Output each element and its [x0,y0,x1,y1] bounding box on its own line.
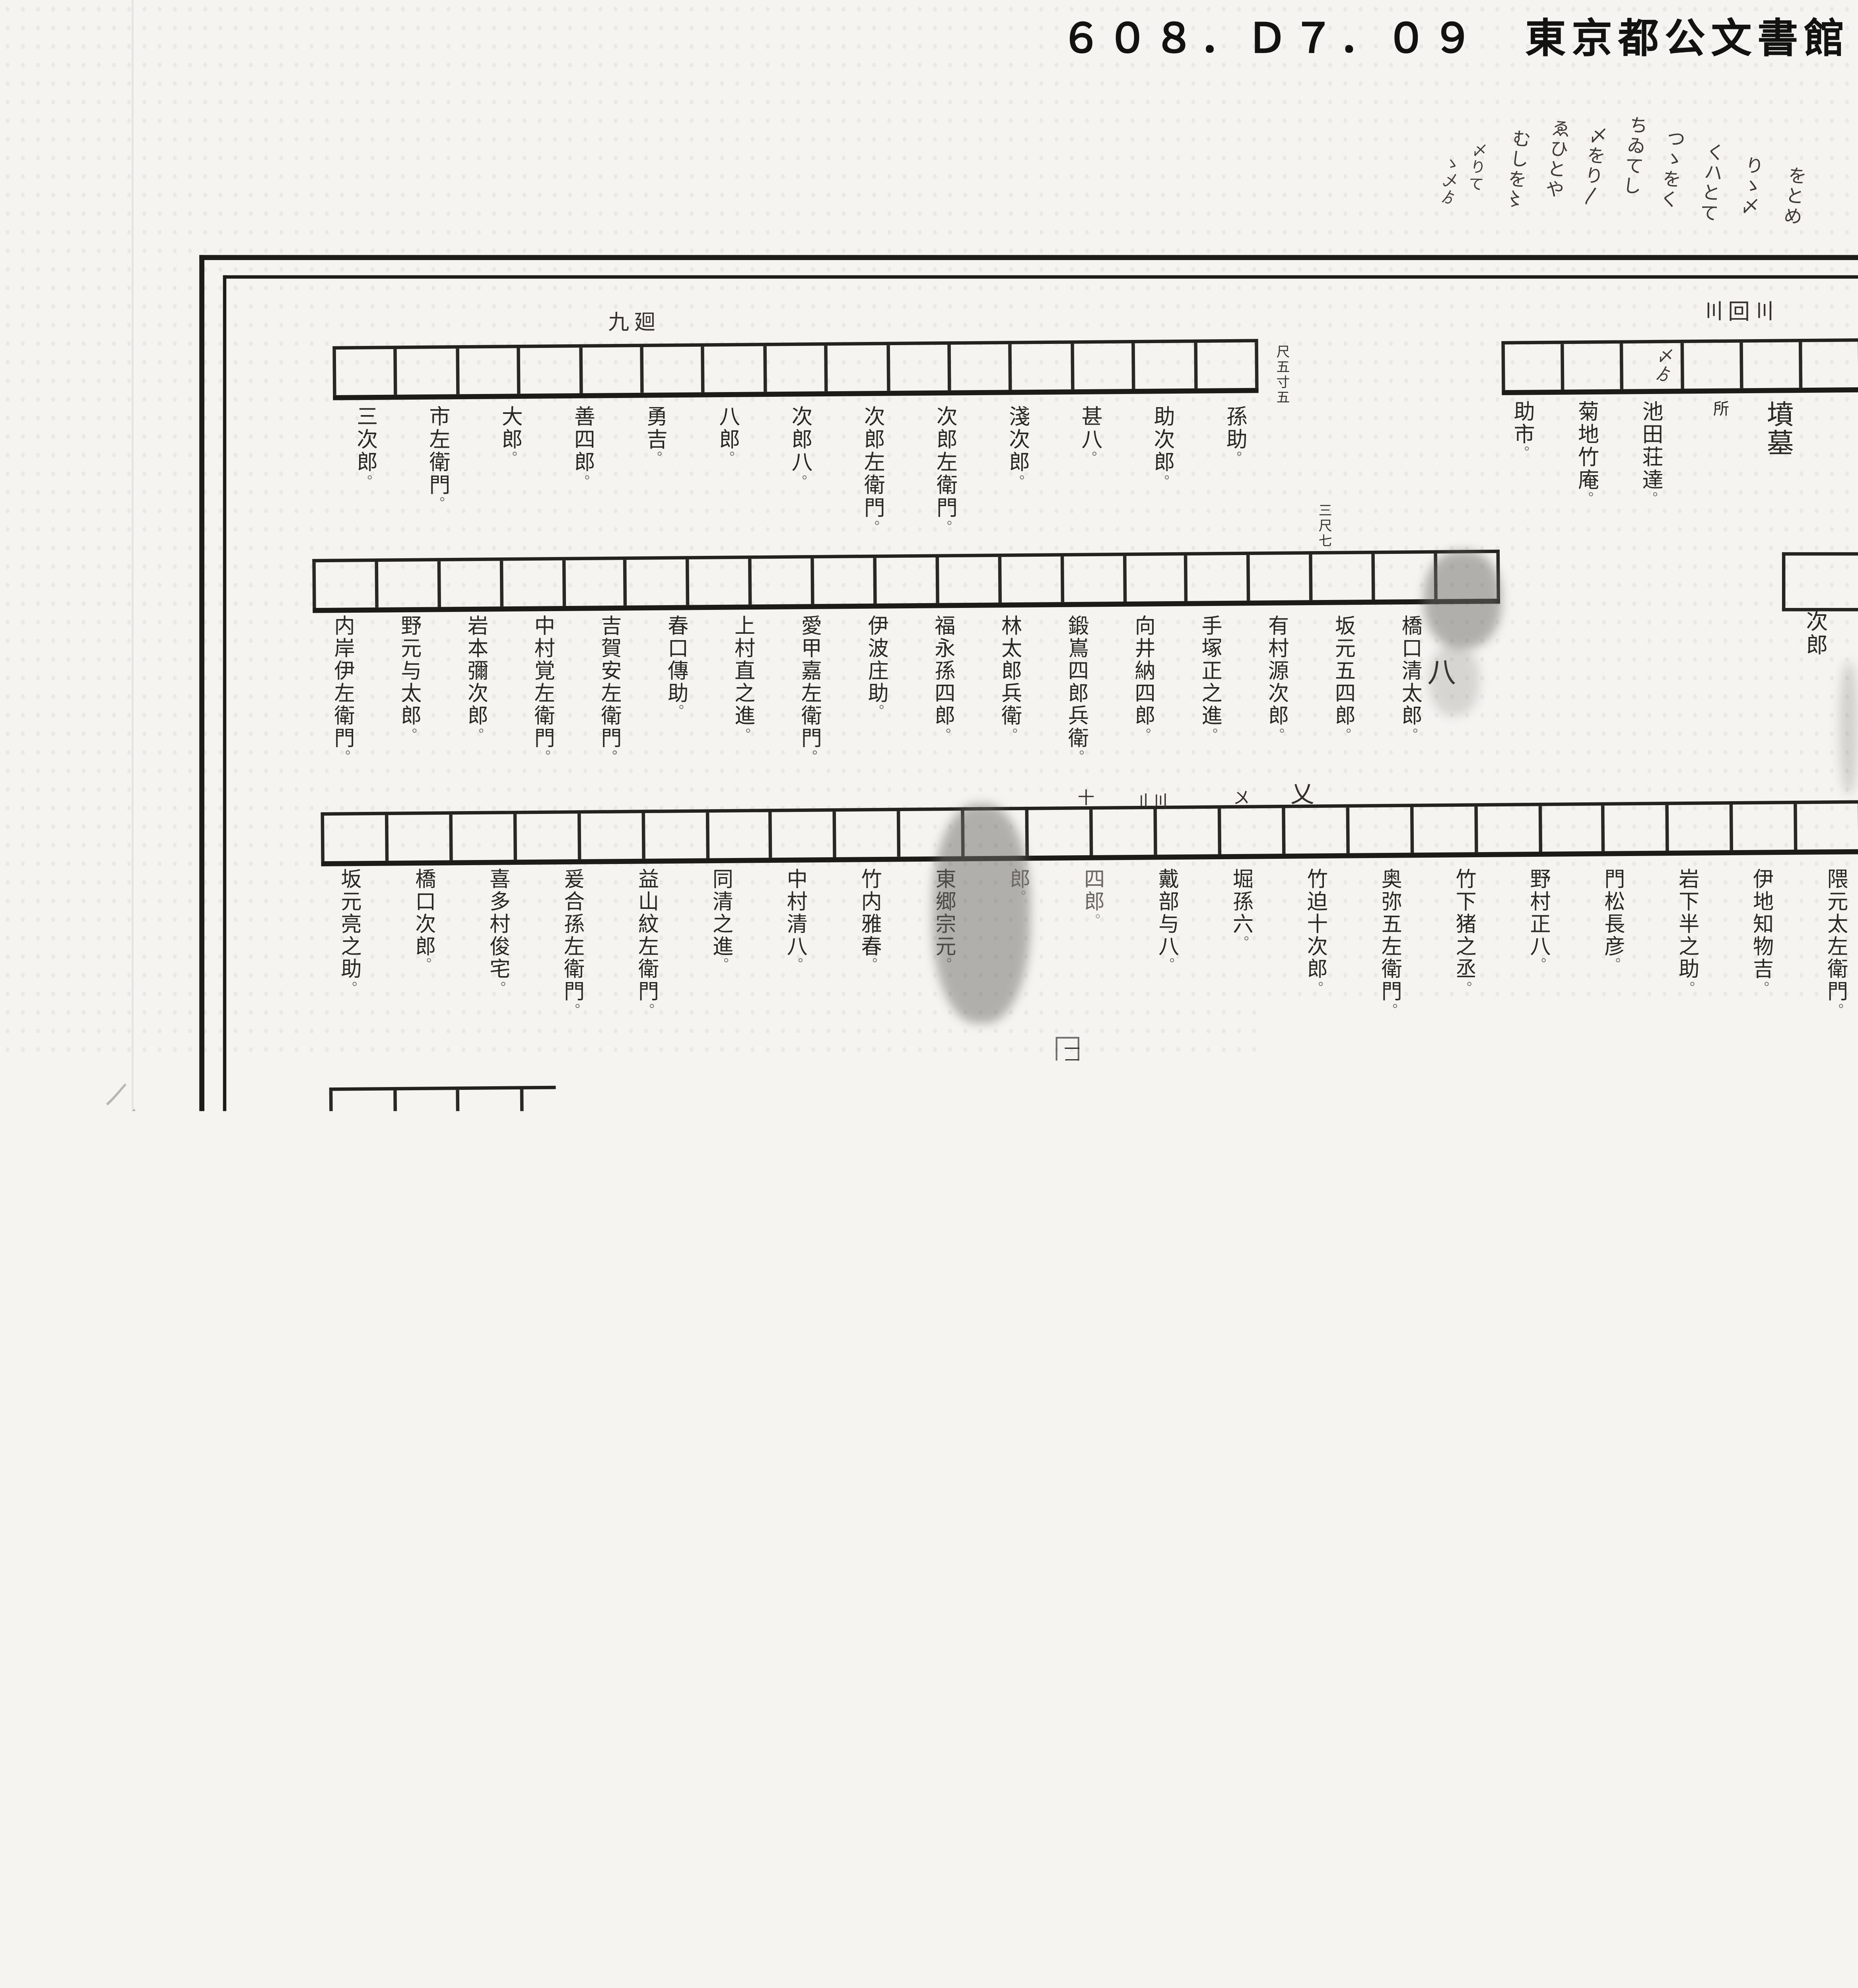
grave-plot-cell [752,558,815,604]
edge-plot-box [1782,552,1858,612]
stele-marker-label: 碑 [928,1698,952,1732]
name-end-mark: 。 [1606,958,1621,973]
wall-fragment [1767,1466,1858,1470]
plot-owner-name: 善四郎。 [562,405,592,574]
plot-owner-name: 貴嶋勇左衛門。 [1417,1143,1447,1363]
grave-plot-cell [587,1088,651,1134]
grave-plot-cell [708,812,773,858]
name-end-mark: 。 [793,474,808,489]
name-end-mark: 。 [1566,1256,1581,1271]
stone-path-center-joint [1363,1385,1367,1988]
illegible-scribble: 〣回〆寸 [432,1496,503,1520]
name-end-mark: 。 [870,705,885,720]
grave-plot-cell [1033,1085,1097,1131]
stele-marker-box: 碑 [912,1664,968,1767]
stone-path-bricks-left [1304,1385,1363,1988]
grave-plot-cell [1250,555,1313,601]
illegible-scribble: 丨回〣久〤十 [936,1858,1042,1881]
illegible-scribble: ゝ乄ゟ [1435,155,1459,237]
plot-owner-name: 竹迫十次郎。 [1296,868,1326,1077]
grave-plot-cell [1160,1084,1224,1130]
plot-owner-name: 中村覚左衛門。 [523,615,553,807]
plot-owner-name: 同清之進。 [701,868,731,1077]
grave-plot-cell [329,1090,397,1136]
grave-plot-cell [643,347,705,393]
grave-plot-strip [1501,338,1858,395]
grave-plot-cell [1093,809,1157,855]
plot-owner-name: 同庄八。 [336,1143,366,1363]
name-end-mark: 。 [1515,446,1530,461]
survey-mark-right: 〆 [1824,1692,1841,1718]
kuroda-grave-box [613,1599,784,1834]
plot-owner-name: 岩下半之助。 [1667,868,1697,1077]
name-end-mark: 。 [536,749,552,765]
name-end-mark: 。 [1836,1256,1851,1271]
plot-owner-name: 鍛嶌金兵衛。 [877,1143,907,1363]
illegible-scribble: くハとて [1687,141,1724,308]
name-end-mark: 。 [1155,474,1170,489]
grave-plot-cell [503,560,566,606]
grave-plot-cell [1351,1082,1415,1128]
plot-owner-name: 田中太郎太。 [742,1143,772,1363]
grave-plot-cell [1349,807,1413,853]
dimension-note: 一尺六寸 [1243,1662,1259,1763]
boundary-wall [223,275,226,1988]
wall-fragment [1505,1824,1508,1988]
grave-plot-cell [889,345,951,391]
lantern-small-label: 燈爐 [350,1848,374,1923]
grave-plot-cell [1288,1083,1352,1129]
plot-owner-name: 墳墓 [1758,400,1788,573]
plot-owner-name: 伊地知物吉。 [1741,868,1772,1077]
stone-path-upper [1300,1385,1430,1988]
grave-plot-cell [906,1086,970,1132]
grave-plot-cell [516,813,581,860]
plot-owner-name: 隈元太左衛門。 [1816,868,1846,1077]
name-end-mark: 。 [1070,749,1085,765]
grave-plot-strip [329,1076,1858,1142]
grave-plot-cell [1670,1080,1734,1126]
plot-owner-name: 有村源次郎。 [1257,615,1287,807]
grave-plot-cell [1126,555,1189,602]
grave-plot-cell [1797,1079,1858,1125]
grave-plot-cell [582,347,644,393]
name-end-mark: 。 [640,1003,655,1018]
plot-owner-name: 吉賀安左衛門。 [589,615,620,807]
survey-mark: 〤 [1233,784,1250,809]
grave-plot-cell [1313,554,1376,600]
grave-plot-cell [1543,1081,1607,1127]
survey-mark-top-left: 九廻 [608,304,661,336]
name-end-mark: 。 [1270,727,1285,742]
name-end-mark: 。 [1296,1278,1311,1293]
name-end-mark: 。 [688,1233,703,1248]
grave-plot-cell [1197,342,1259,388]
illegible-scribble: をとめ [1774,165,1805,278]
plot-owner-name: 菊地竹庵。 [1566,400,1596,573]
plot-owner-name: 堀孫六。 [1221,868,1252,1077]
grave-plot-cell [1097,1084,1161,1130]
grave-plot-cell [1285,808,1349,854]
plot-owner-name: 勇吉。 [634,405,665,574]
grave-plot-cell [440,561,503,607]
crease-mark: 水〻 [1201,1412,1246,1447]
grave-plot-cell [452,814,517,860]
grave-plot-cell [690,559,752,605]
plot-owner-name: 有川元左衛門。 [1282,1143,1312,1363]
survey-mark: 〢〣 [1135,787,1169,812]
grave-plot-cell [1733,804,1798,850]
photocopy-smudge [1839,662,1858,794]
stele-marker-box-right: 碑 [1510,1854,1606,1934]
plot-owner-name: 坂元亮之助。 [329,868,360,1077]
plot-owner-name: 肝付十郎。 [1147,1143,1177,1363]
grave-plot-cell [332,349,398,395]
grave-plot-cell [1224,1083,1288,1130]
grave-plot-cell [321,815,389,861]
name-end-mark: 。 [803,749,818,765]
grave-plot-cell [460,1089,524,1136]
grave-plot-cell [814,558,877,604]
name-end-mark: 。 [822,1211,838,1226]
survey-mark: 十 [1078,784,1094,809]
photocopy-smudge [1429,645,1479,716]
plot-owner-name: 橋口次郎。 [404,868,434,1077]
plot-owner-name: 戴部与八。 [1147,868,1177,1077]
name-end-mark: 。 [1532,958,1547,973]
plot-owner-name: 谷村小吉。 [674,1143,704,1363]
grave-plot-cell [1063,556,1126,602]
grave-plot-cell [644,813,709,859]
name-end-mark: 。 [737,727,752,742]
name-end-mark: 。 [648,451,663,466]
grave-plot-cell [970,1085,1034,1132]
grave-plot-cell [388,815,453,861]
lantern-16-label: 本六十爐燈 [334,1389,859,1476]
plot-owner-name: 四郎。 [1073,868,1103,1077]
name-end-mark: 。 [1160,958,1176,973]
grave-plot-cell [565,560,628,606]
grave-plot-cell [1606,1080,1670,1126]
grave-plot-cell [1564,344,1624,390]
name-end-mark: 。 [1083,451,1098,466]
name-end-mark: 。 [492,980,507,996]
name-end-mark: 。 [1010,474,1025,489]
grave-plot-cell [1477,806,1541,852]
name-end-mark: 。 [1404,727,1419,742]
grave-plot-cell [1802,342,1858,388]
plot-owner-name: 愛甲嘉左衛門。 [790,615,820,807]
survey-mark-top-right: 〣回〣 [1703,294,1778,326]
illegible-scribble: 〆りて [1462,141,1487,235]
name-end-mark: 。 [1579,491,1594,507]
name-end-mark: 。 [1003,727,1018,742]
name-end-mark: 。 [1309,980,1324,996]
stone-path-bricks-right [1366,1385,1427,1988]
plot-owner-name: 北條慎一郎。 [1687,1143,1718,1363]
plot-owner-name: 藤野休八。 [1755,1143,1785,1363]
name-end-mark: 。 [1203,727,1219,742]
grave-plot-cell [651,1088,715,1134]
name-end-mark: 。 [358,474,373,489]
plot-owner-name: 山田司。 [1012,1143,1042,1363]
plot-owner-name: 喜多村俊宅。 [478,868,508,1077]
plot-owner-name: 上村直之進。 [723,615,753,807]
plot-owner-name: 春口傳助。 [656,615,686,807]
name-end-mark: 。 [1701,1256,1716,1271]
stele-marker-right-label: 碑 [1545,1876,1571,1912]
name-end-mark: 。 [1384,1003,1399,1018]
lantern-16-label-box: 本六十爐燈 [290,1381,859,1485]
plot-owner-name: 次郎左衛門。 [852,405,882,574]
name-end-mark: 。 [336,749,351,765]
name-end-mark: 。 [789,958,804,973]
grave-plot-cell [1029,810,1093,856]
grave-plot-cell [397,349,459,395]
illegible-scribble: 〆をり〳 [1568,124,1606,308]
name-end-mark: 。 [431,497,446,512]
name-end-mark: 。 [715,958,730,973]
grave-plot-cell [1001,557,1064,603]
kuroda-grave-label-1: 黒田共十八人 [718,1611,739,1790]
dimension-note: 一尺六寸半 [1243,1780,1259,1908]
lantern-9-box: 本九爐燈 [1030,1668,1242,1764]
plot-owner-name: 八郎。 [707,405,737,574]
name-end-mark: 。 [1363,1256,1378,1271]
plot-owner-name: 竹内雅春。 [849,868,880,1077]
name-end-mark: 。 [1093,1256,1108,1271]
stele-11-box: 本壹十 [1600,1854,1858,1934]
lantern-13-label: 本三十爐燈 [953,1806,1232,1854]
photocopy-smudge [933,804,1030,1023]
boundary-wall [199,255,204,1988]
name-end-mark: 。 [1633,1256,1648,1271]
name-end-mark: 。 [403,727,418,742]
lantern-5-label: 燈爐五本 [612,1148,634,1266]
plot-owner-name: 次郎八。 [779,405,810,574]
ditto-mark: 同 [529,1652,546,1677]
plot-owner-name: 有馬早八郎。 [1823,1143,1853,1363]
illegible-scribble: 〣屋 [959,1756,991,1780]
grave-plot-cell [580,813,645,859]
illegible-scribble: むしを〻 [1490,128,1530,328]
grave-plot-cell [836,811,901,857]
grave-plot-cell [1135,343,1197,389]
plot-owner-name: 樺山十兵衛。 [1079,1143,1110,1363]
name-end-mark: 。 [1430,1278,1446,1293]
plot-owner-name: 甚八。 [1069,405,1100,574]
boundary-wall [199,255,1858,259]
grave-plot-cell [627,559,690,606]
plot-owner-name: 左近充彌彦。 [1350,1143,1380,1363]
plot-owner-name: 淺次郎。 [997,405,1027,574]
grave-plot-cell [1413,807,1477,853]
grave-plot-cell [1074,343,1136,389]
stele-11-label: 本壹十 [1627,1870,1819,1918]
name-end-mark: 。 [1644,491,1659,507]
stele-2-box: 本二碑 [921,1888,1172,1971]
name-end-mark: 。 [1086,913,1101,928]
page-scaler: ６０８．Ｄ７．０９ 東京都公文書館 本六十爐燈 篠嵜外十二人 同 黒田共十八人 … [0,0,1858,1988]
survey-mark: 乂 [1290,777,1314,811]
grave-plot-cell [1742,342,1802,388]
name-end-mark: 。 [552,1256,568,1271]
name-end-mark: 。 [575,474,591,489]
name-end-mark: 。 [1160,1233,1176,1248]
grave-plot-cell [951,344,1013,390]
grave-plot-cell [1188,555,1251,601]
grave-plot-cell [1221,808,1285,854]
page-fold-line [132,0,134,1988]
plot-owner-name: 佐土原新助。 [1215,1143,1245,1363]
grave-plot-cell [778,1087,842,1133]
grave-plot-cell [1541,806,1605,852]
grave-plot-cell [1683,343,1743,389]
grave-plot-cell [1734,1079,1798,1126]
name-end-mark: 。 [1337,727,1352,742]
grave-plot-cell [705,346,767,392]
plot-owner-name: 林太郎兵衛。 [990,615,1020,807]
plot-owner-name: 益山紋左衛門。 [627,868,657,1077]
name-end-mark: 。 [1681,980,1696,996]
grave-plot-strip [312,549,1500,613]
plot-owner-name: 閑太郎。 [809,1143,839,1363]
name-end-mark: 。 [720,451,735,466]
name-end-mark: 。 [1769,1233,1784,1248]
crease-mark: 〆〻 [891,1419,943,1464]
name-end-mark: 。 [1458,980,1473,996]
name-end-mark: 。 [603,749,618,765]
plot-owner-name: 鍛嶌四郎兵衛。 [1057,615,1087,807]
plot-owner-name: 内岸伊左衛門。 [323,615,353,807]
illegible-scribble: ゑひとや [1528,118,1569,335]
name-end-mark: 。 [417,958,432,973]
plot-owner-name: 奥弥五左衛門。 [1370,868,1400,1077]
plot-owner-name: 竹下猪之丞。 [1444,868,1474,1077]
plot-owner-name: 同米次郎娘。 [404,1143,434,1363]
name-end-mark: 。 [1235,936,1250,951]
archive-stamp: ６０８．Ｄ７．０９ 東京都公文書館 [1061,5,1850,64]
wall-fragment [1767,1650,1858,1654]
lantern-small-box: 燈爐 [317,1837,405,1934]
plot-owner-name: 野村正八。 [1518,868,1549,1077]
dimension-note: 一間五尺五寸 [873,1635,890,1854]
plot-owner-name: 爰合孫左衛門。 [552,868,583,1077]
name-end-mark: 。 [350,1211,365,1226]
name-end-mark: 。 [470,727,485,742]
grave-plot-strip [321,800,1858,866]
grave-plot-cell [524,1089,588,1135]
plot-owner-name: 川北五郎左衛門。 [1485,1143,1515,1363]
name-end-mark: 。 [1829,1003,1844,1018]
archive-scan-page: ６０８．Ｄ７．０９ 東京都公文書館 本六十爐燈 篠嵜外十二人 同 黒田共十八人 … [0,0,1858,1988]
plot-owner-name: 野元与太郎。 [389,615,420,807]
dimension-note: 三尺七 [1318,503,1331,557]
plot-owner-name: 池田荘達。 [1630,400,1660,573]
plot-owner-name: 向井納四郎。 [1123,615,1153,807]
grave-plot-cell [1501,344,1565,390]
plot-owner-name: 鈴木武九郎。 [944,1143,974,1363]
plot-owner-name: 門松長彦。 [1593,868,1623,1077]
name-end-mark: 。 [343,980,358,996]
illegible-scribble: ちゐてし [1605,115,1646,325]
grave-plot-cell [939,557,1002,603]
plot-owner-name: 末次吉之助。 [1552,1143,1582,1363]
plot-owner-name: 助次郎。 [1142,405,1172,574]
plot-owner-name: 大郎。 [490,405,520,574]
grave-plot-cell [521,348,583,394]
grave-plot-cell [1157,809,1221,855]
stele-2-label: 本二碑 [958,1905,1171,1954]
name-end-mark: 。 [1137,727,1152,742]
plot-owner-name: 中村清八。 [775,868,806,1077]
name-end-mark: 。 [890,1256,905,1271]
name-end-mark: 。 [938,519,953,534]
grave-plot-cell [378,561,441,608]
name-end-mark: 。 [1025,1211,1040,1226]
plot-owner-name: 三次郎。 [344,405,375,574]
name-end-mark: 。 [1755,980,1770,996]
grave-plot-cell [1669,805,1734,851]
water-basin-label: 水盥 [987,1674,1011,1755]
dimension-note: 二尺二寸 [1176,1888,1191,1988]
name-end-mark: 。 [863,958,878,973]
grave-plot-cell [1797,804,1858,850]
grave-plot-cell [1479,1081,1543,1128]
name-end-mark: 。 [503,451,518,466]
lantern-5-box: 燈爐五本 [600,1140,647,1393]
lantern-9-label: 本九爐燈 [1049,1693,1239,1738]
plot-owner-name: 所 [1694,400,1724,573]
plot-owner-name: 市左衛門。 [417,405,447,574]
grave-plot-strip [332,339,1259,400]
grave-plot-cell [842,1086,906,1132]
grave-plot-cell [828,345,890,391]
wall-fragment [1824,1442,1828,1656]
grave-plot-cell [1415,1082,1479,1128]
grave-plot-cell [1013,344,1075,390]
name-end-mark: 。 [1228,451,1243,466]
edge-plot-owner-name: 次郎 [1804,610,1826,711]
name-end-mark: 。 [958,1256,973,1271]
photocopy-smudge [365,1598,513,1760]
plot-owner-name: 手塚正之進。 [1190,615,1220,807]
grave-plot-cell [772,812,837,858]
plot-owner-name: 伊波庄助。 [856,615,886,807]
plot-owner-name: 橋口清太郎。 [1390,615,1421,807]
plot-owner-name: 岩本彌次郎。 [456,615,486,807]
crease-mark: 〵〵 [93,1076,150,1140]
water-basin-box: 水盥 [964,1664,1034,1767]
grave-plot-cell [715,1087,779,1134]
plot-owner-name: 助市。 [1502,400,1532,573]
name-end-mark: 。 [417,1256,432,1271]
plot-owner-name: 孫助。 [1214,405,1244,574]
name-end-mark: 。 [566,1003,581,1018]
name-end-mark: 。 [937,727,952,742]
grave-plot-cell [396,1090,460,1136]
grave-plot-cell [312,562,378,608]
name-end-mark: 。 [485,1233,500,1248]
grave-plot-cell [877,557,939,604]
name-end-mark: 。 [670,705,685,720]
plot-owner-name: 大嵜猪之丞。 [539,1143,569,1363]
grave-plot-cell [1605,805,1669,851]
illegible-scribble: 〢回貝〤物 [973,1625,1061,1648]
plot-owner-name: 次郎左衛門。 [924,405,954,574]
plot-owner-name: 益満休之助。 [1620,1143,1650,1363]
grave-plot-cell [766,346,828,392]
